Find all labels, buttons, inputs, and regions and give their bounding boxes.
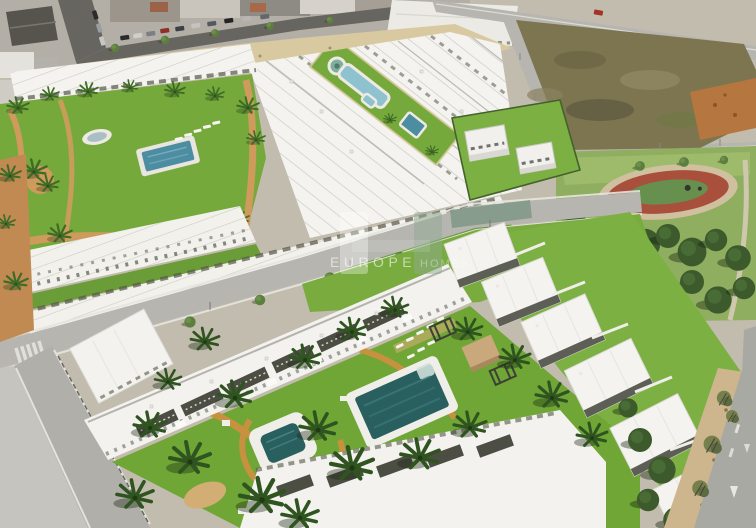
villa: [465, 125, 510, 161]
watermark-text-primary: EUROPE: [330, 254, 416, 270]
watermark-text-secondary: HOMES: [420, 258, 470, 270]
gabled-house: [6, 6, 58, 46]
scene-canvas: EUROPE HOMES: [0, 0, 756, 528]
aerial-render-photo: EUROPE HOMES: [0, 0, 756, 528]
villa: [516, 142, 556, 174]
logo-crossbar: [352, 240, 430, 252]
